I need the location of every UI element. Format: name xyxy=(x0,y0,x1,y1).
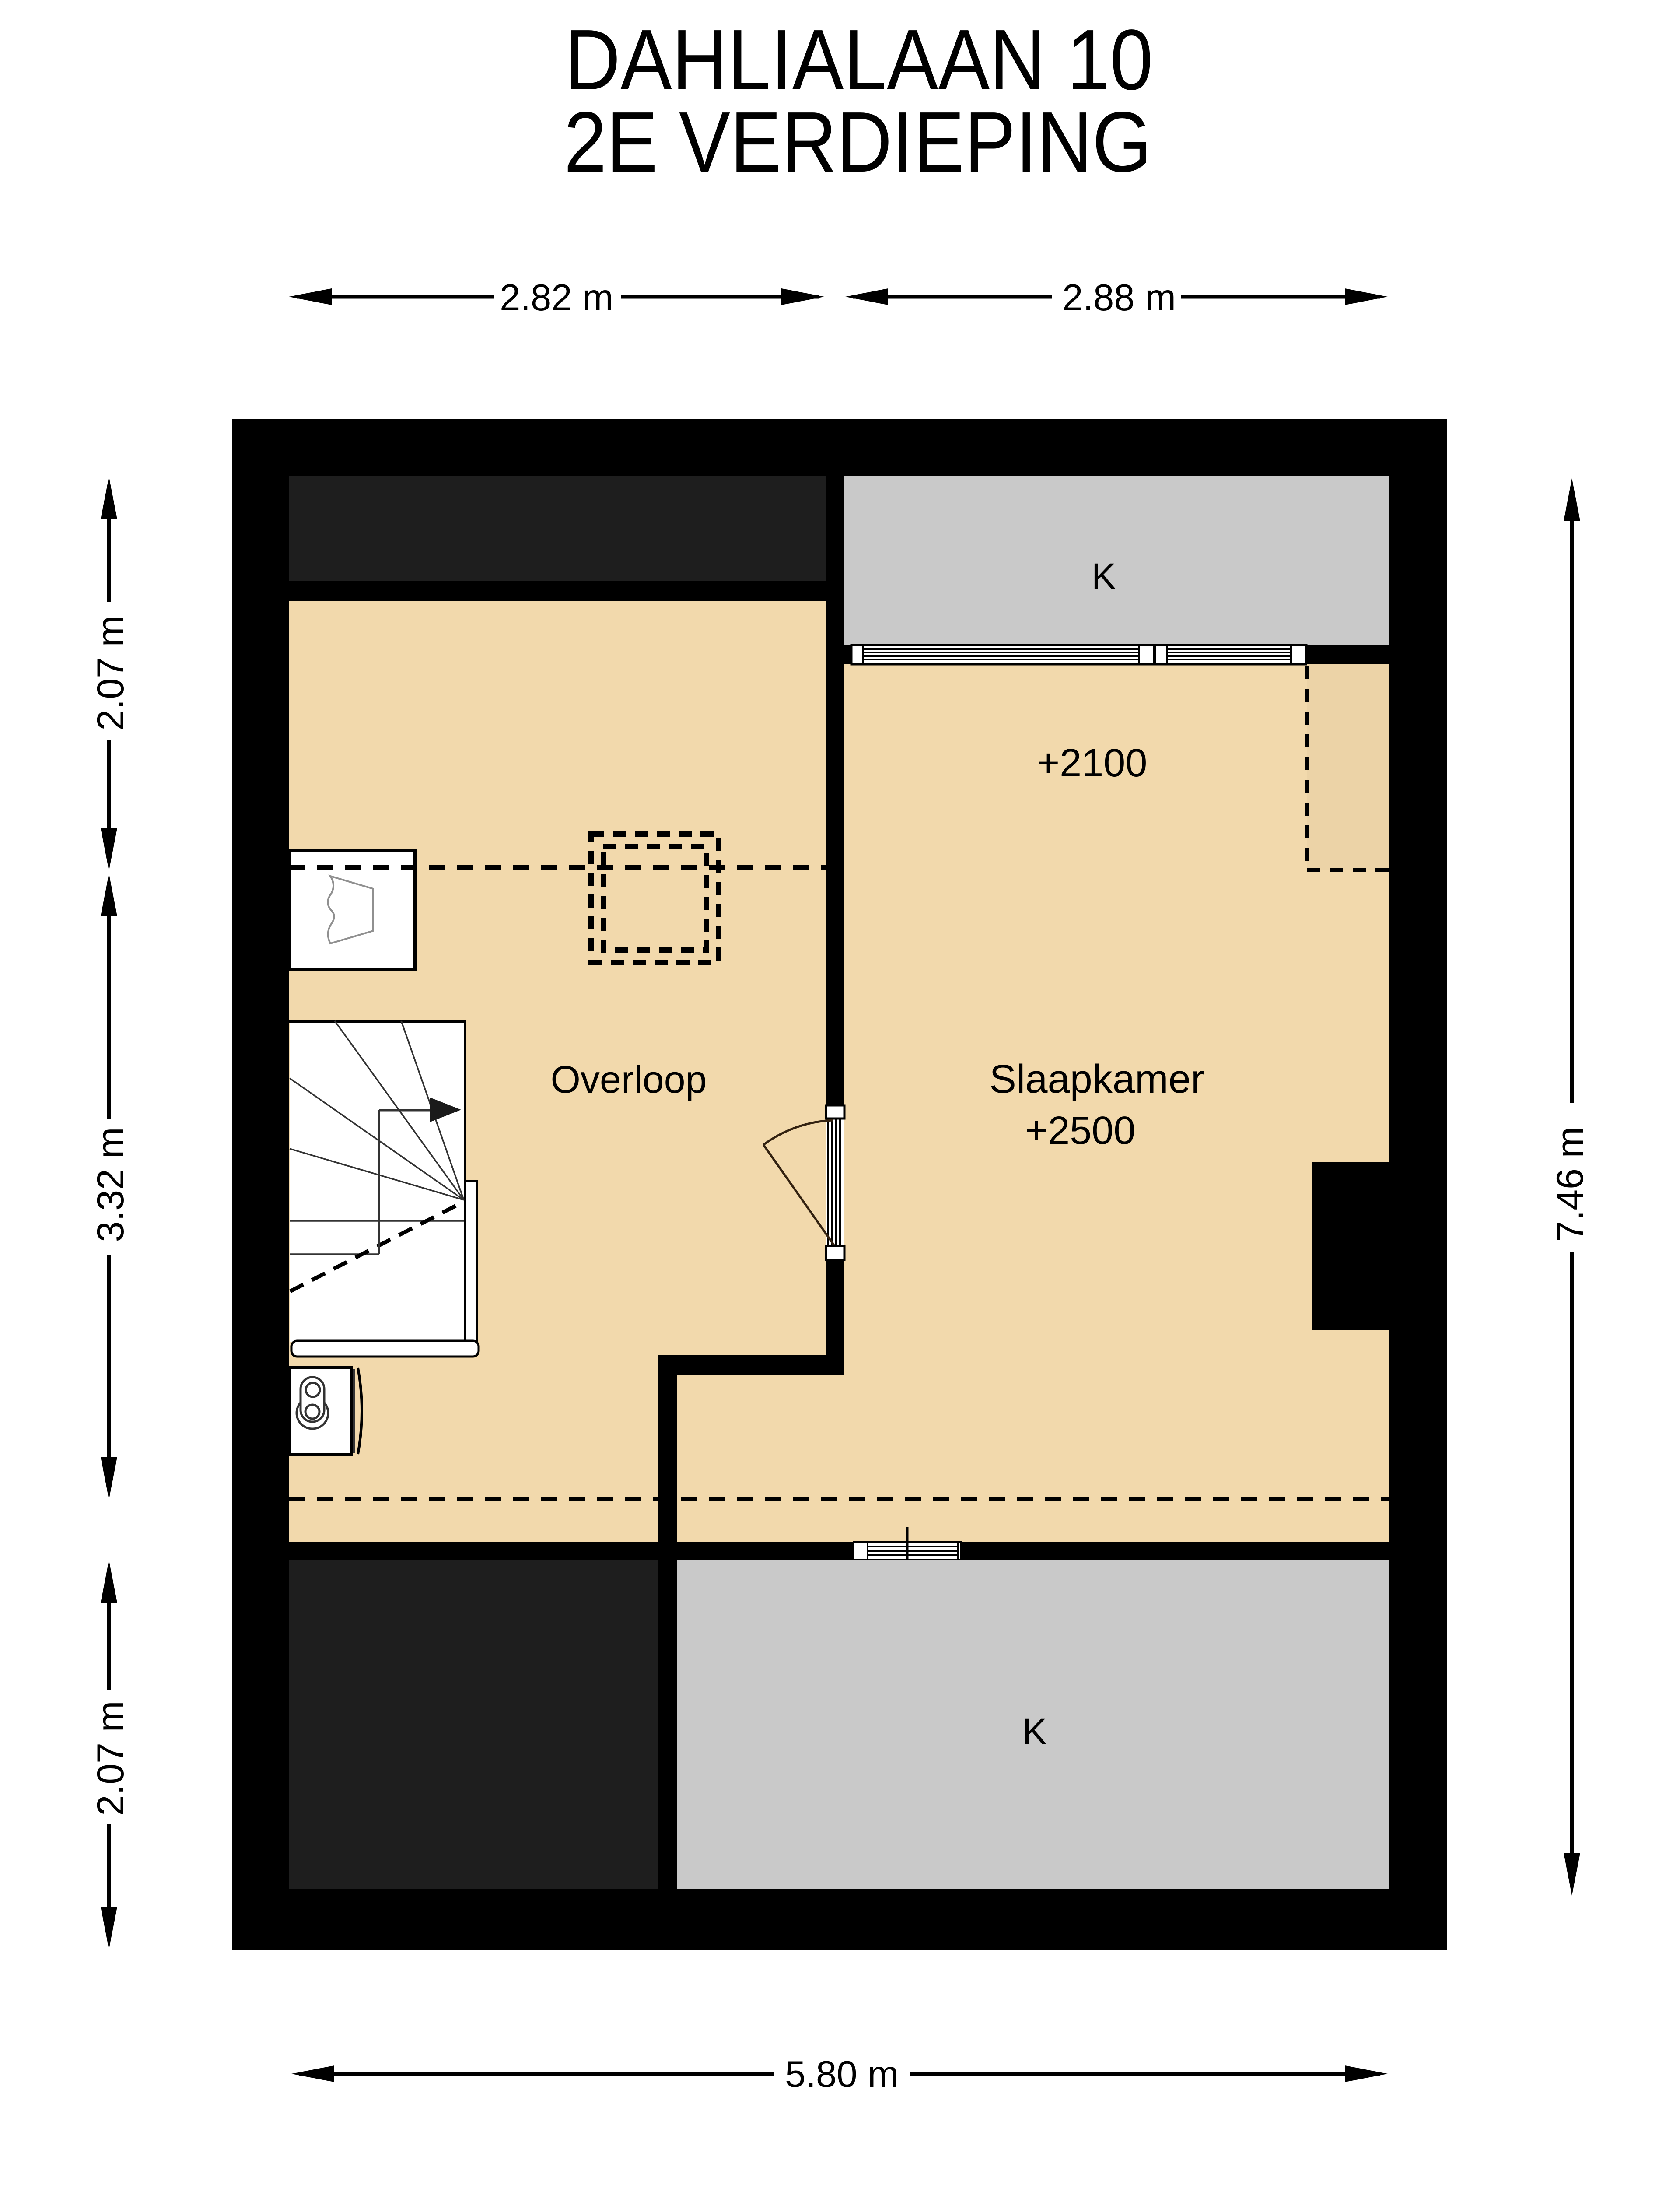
svg-text:5.80 m: 5.80 m xyxy=(785,2054,899,2095)
svg-text:K: K xyxy=(1092,556,1116,597)
svg-text:K: K xyxy=(1022,1711,1047,1752)
svg-text:2.82 m: 2.82 m xyxy=(500,277,613,319)
svg-text:+2100: +2100 xyxy=(1037,741,1148,785)
svg-text:Overloop: Overloop xyxy=(550,1058,707,1101)
svg-text:2.88 m: 2.88 m xyxy=(1062,277,1176,319)
svg-text:7.46 m: 7.46 m xyxy=(1549,1127,1591,1242)
svg-text:2.07 m: 2.07 m xyxy=(90,1701,132,1816)
svg-text:+2500: +2500 xyxy=(1025,1109,1136,1153)
svg-text:3.32 m: 3.32 m xyxy=(90,1127,132,1242)
svg-text:2.07 m: 2.07 m xyxy=(90,616,132,731)
svg-text:DAHLIALAAN 10: DAHLIALAAN 10 xyxy=(565,12,1153,108)
svg-text:2E VERDIEPING: 2E VERDIEPING xyxy=(564,94,1152,190)
svg-text:Slaapkamer: Slaapkamer xyxy=(990,1057,1204,1101)
